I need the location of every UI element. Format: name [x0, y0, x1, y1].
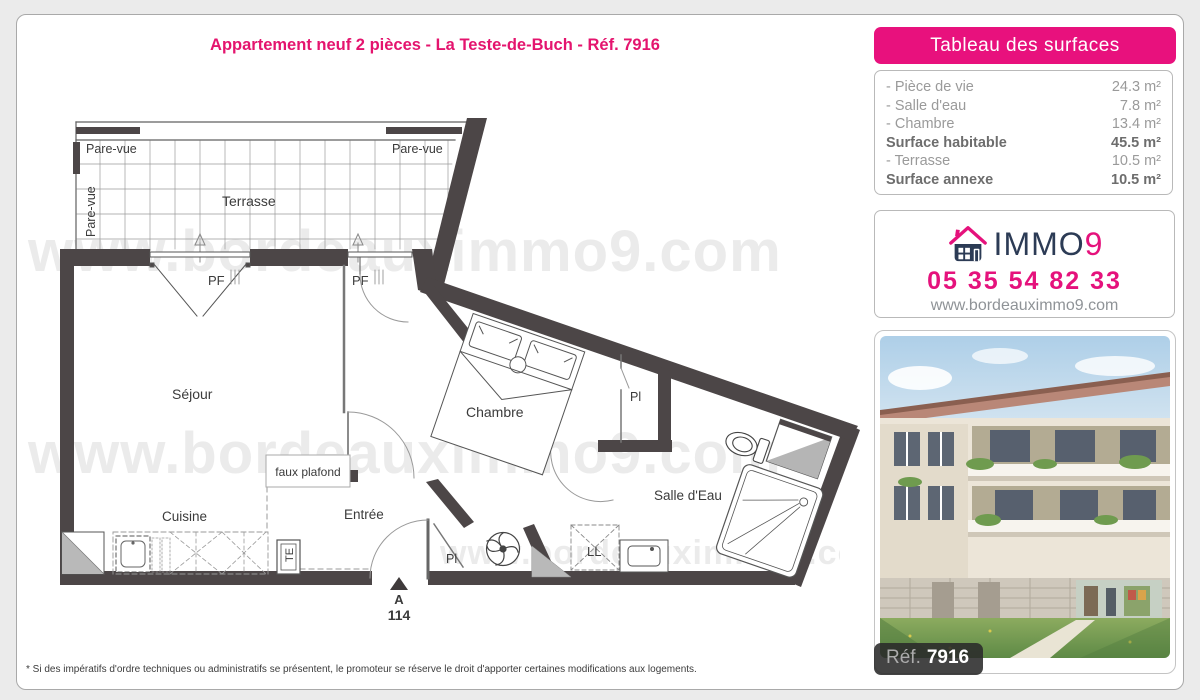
website-link[interactable]: www.bordeauximmo9.com	[875, 297, 1174, 315]
surface-label: Surface habitable	[886, 134, 1007, 153]
phone-number[interactable]: 05 35 54 82 33	[875, 267, 1174, 296]
kitchen-counter	[113, 532, 268, 574]
agency-contact-card: IMMO9 05 35 54 82 33 www.bordeauximmo9.c…	[874, 210, 1175, 318]
surface-row: - Pièce de vie 24.3 m²	[886, 78, 1161, 97]
surface-label: - Terrasse	[886, 152, 950, 171]
house-icon	[946, 223, 990, 265]
surface-label: - Pièce de vie	[886, 78, 974, 97]
label-lot-letter: A	[394, 592, 404, 607]
surface-value: 45.5 m²	[1111, 134, 1161, 153]
surface-label: Surface annexe	[886, 171, 993, 190]
surfaces-table: - Pièce de vie 24.3 m² - Salle d'eau 7.8…	[874, 70, 1173, 195]
label-entree: Entrée	[344, 507, 384, 522]
surface-row-total: Surface habitable 45.5 m²	[886, 134, 1161, 153]
label-terrasse: Terrasse	[222, 193, 276, 209]
duct-triangle	[532, 546, 571, 577]
building-photo-frame	[874, 330, 1176, 674]
brand-wordmark: IMMO9	[994, 226, 1104, 263]
label-ll: LL	[587, 544, 601, 559]
surface-row-total: Surface annexe 10.5 m²	[886, 171, 1161, 190]
floor-plan: Pare-vue Pare-vue Pare-vue Terrasse PF P…	[0, 0, 870, 660]
label-pare-vue-right: Pare-vue	[392, 142, 443, 156]
surface-value: 10.5 m²	[1111, 171, 1161, 190]
ref-badge-number: 7916	[927, 647, 969, 668]
label-chambre: Chambre	[466, 404, 524, 420]
vmc-fan	[487, 533, 520, 566]
label-faux-plafond: faux plafond	[275, 465, 340, 479]
ref-badge-label: Réf.	[886, 647, 921, 668]
toilet	[722, 428, 770, 464]
surface-value: 7.8 m²	[1120, 97, 1161, 116]
immo9-logo: IMMO9	[875, 223, 1174, 265]
label-sejour: Séjour	[172, 386, 213, 402]
building-photo	[880, 336, 1170, 658]
surface-row: - Salle d'eau 7.8 m²	[886, 97, 1161, 116]
entry-arrow	[390, 577, 408, 590]
label-lot-number: 114	[388, 607, 411, 623]
label-pl-chambre: Pl	[630, 390, 641, 404]
label-salle-eau: Salle d'Eau	[654, 488, 722, 503]
label-pf-1: PF	[208, 273, 225, 288]
page-title: Appartement neuf 2 pièces - La Teste-de-…	[20, 36, 850, 55]
ref-badge: Réf.7916	[874, 643, 983, 675]
duct-shaft	[62, 532, 104, 574]
surface-label: - Chambre	[886, 115, 955, 134]
surface-value: 24.3 m²	[1112, 78, 1161, 97]
surface-row: - Chambre 13.4 m²	[886, 115, 1161, 134]
label-cuisine: Cuisine	[162, 509, 207, 524]
surface-value: 13.4 m²	[1112, 115, 1161, 134]
surfaces-table-header: Tableau des surfaces	[874, 27, 1176, 64]
disclaimer-text: * Si des impératifs d'ordre techniques o…	[26, 664, 697, 675]
bathroom-sink	[620, 540, 668, 572]
label-te: TE	[284, 548, 296, 562]
surface-row: - Terrasse 10.5 m²	[886, 152, 1161, 171]
surface-value: 10.5 m²	[1112, 152, 1161, 171]
label-pl-entree: Pl	[446, 552, 457, 566]
label-pf-2: PF	[352, 273, 369, 288]
label-pare-vue-left: Pare-vue	[86, 142, 137, 156]
brand-immo: IMMO	[994, 226, 1085, 262]
surface-label: - Salle d'eau	[886, 97, 966, 116]
label-pare-vue-side: Pare-vue	[84, 186, 98, 237]
brand-nine: 9	[1085, 226, 1104, 262]
